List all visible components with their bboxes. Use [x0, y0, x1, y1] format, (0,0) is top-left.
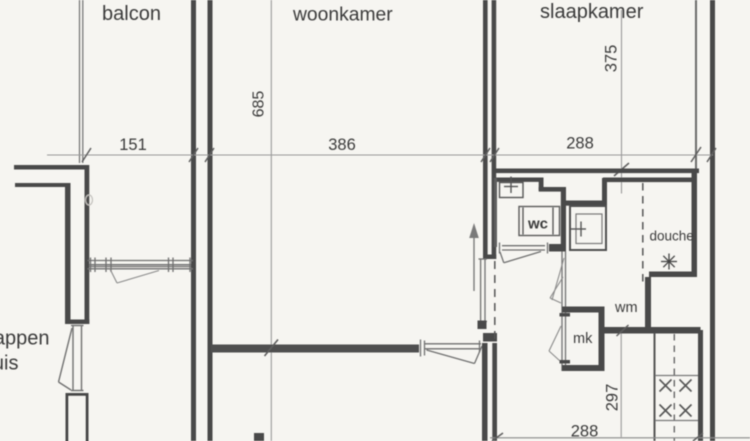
svg-text:151: 151 — [119, 136, 147, 154]
svg-text:288: 288 — [571, 423, 599, 441]
svg-text:386: 386 — [328, 136, 356, 154]
svg-text:297: 297 — [604, 384, 622, 412]
svg-text:slaapkamer: slaapkamer — [540, 1, 644, 23]
svg-text:balcon: balcon — [102, 3, 161, 25]
svg-text:woonkamer: woonkamer — [292, 5, 393, 26]
svg-text:trappen: trappen — [0, 328, 50, 350]
svg-text:douche: douche — [650, 229, 694, 244]
svg-text:685: 685 — [251, 91, 268, 118]
svg-text:mk: mk — [573, 331, 593, 347]
svg-text:wc: wc — [527, 216, 548, 233]
svg-text:wm: wm — [614, 300, 638, 316]
svg-text:375: 375 — [603, 45, 621, 73]
svg-text:huis: huis — [0, 353, 19, 375]
svg-text:288: 288 — [566, 135, 594, 153]
